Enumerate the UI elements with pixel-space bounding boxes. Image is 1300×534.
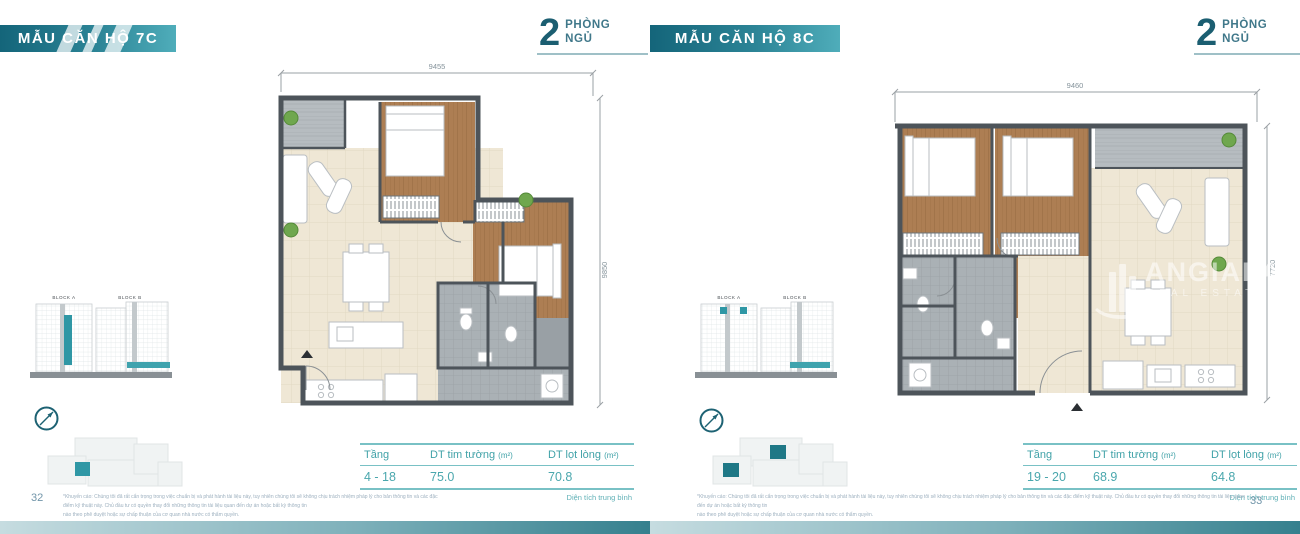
wardrobe: [383, 196, 439, 218]
washbasin: [478, 352, 492, 362]
bedroom-word-top: PHÒNG: [565, 19, 610, 31]
wardrobe: [903, 233, 983, 255]
wall-area-value: 75.0: [430, 470, 548, 484]
chair: [369, 244, 383, 253]
unit-location-highlight: [740, 307, 747, 314]
compass-icon: [698, 407, 725, 434]
unit-highlight: [75, 462, 90, 476]
dim-width-label-8c: 9460: [1067, 81, 1084, 90]
disclaimer-right: *Khuyến cáo: Chúng tôi đã rất cẩn trọng …: [697, 493, 1245, 520]
sofa: [1205, 178, 1229, 246]
unit-highlight: [770, 445, 786, 459]
core-strip: [725, 304, 730, 372]
ground-line: [30, 372, 172, 378]
bedroom-words: PHÒNG NGỦ: [560, 15, 610, 51]
chair: [1151, 336, 1165, 345]
banner-title-8c: MẪU CĂN HỘ 8C: [675, 30, 815, 47]
headboard: [905, 136, 913, 196]
disclaimer-left: *Khuyến cáo: Chúng tôi đã rất cẩn trọng …: [63, 493, 448, 520]
block-b-elevation: [96, 308, 126, 372]
col-floor: Tầng: [364, 449, 430, 461]
floor-plan-8c: 9460 7720: [885, 78, 1285, 423]
dim-height-label-7c: 9850: [600, 262, 608, 279]
net-area-value: 70.8: [548, 470, 638, 484]
unit-underline: [537, 53, 648, 55]
keyplan-7c: [30, 432, 185, 494]
floor-range: 4 - 18: [364, 470, 430, 484]
chair: [1151, 280, 1165, 289]
block-elevation-8c: BLOCK A BLOCK B: [693, 292, 839, 382]
block-a-label: BLOCK A: [52, 295, 76, 300]
toilet: [917, 296, 929, 312]
wardrobe: [1001, 233, 1079, 255]
col-floor: Tầng: [1027, 449, 1093, 461]
col-wall-area: DT tim tường (m²): [430, 449, 548, 461]
ground-line: [695, 372, 837, 378]
core-strip: [132, 302, 137, 372]
sofa: [283, 155, 307, 223]
bedroom-count-7c: 2 PHÒNG NGỦ: [539, 15, 610, 51]
dining-table: [343, 252, 389, 302]
kitchen-cabinet: [1103, 361, 1143, 389]
col-wall-area: DT tim tường (m²): [1093, 449, 1211, 461]
floorplate: [823, 462, 847, 486]
chair: [349, 302, 363, 311]
kitchen-island: [329, 322, 403, 348]
kitchen-counter: [1185, 365, 1235, 387]
dim-height-label-8c: 7720: [1268, 260, 1277, 277]
table-header-row: Tầng DT tim tường (m²) DT lọt lòng (m²): [1023, 445, 1297, 465]
balcony: [1095, 126, 1243, 168]
bed: [386, 114, 444, 176]
chair: [1131, 336, 1145, 345]
kitchen-counter: [1147, 365, 1181, 387]
toilet-tank: [460, 308, 472, 314]
bedroom-words: PHÒNG NGỦ: [1217, 15, 1267, 51]
block-b-label: BLOCK B: [783, 295, 806, 300]
toilet: [460, 314, 472, 330]
bottom-accent-bar: [0, 521, 650, 534]
chair: [349, 244, 363, 253]
kitchen-counter: [305, 380, 383, 402]
block-b-elevation: [761, 308, 791, 372]
floor-plan-7c: 9455 9850: [273, 60, 608, 418]
table-header-row: Tầng DT tim tường (m²) DT lọt lòng (m²): [360, 445, 634, 465]
headboard: [386, 106, 444, 114]
washing-machine: [541, 374, 563, 398]
page-number-left: 32: [31, 492, 43, 504]
bedroom-word-bottom: NGỦ: [565, 33, 592, 45]
unit-location-highlight: [64, 315, 72, 365]
bed: [499, 246, 553, 296]
washing-machine: [909, 363, 931, 387]
unit-location-highlight: [720, 307, 727, 314]
fridge: [385, 374, 417, 402]
bedroom-number: 2: [539, 15, 560, 51]
bed: [913, 138, 975, 196]
floorplate: [158, 462, 182, 486]
disclaimer-line2: nào theo phê duyệt hoặc sự chấp thuận củ…: [697, 512, 873, 518]
washbasin: [997, 338, 1010, 349]
brochure-spread: MẪU CĂN HỘ 7C 2 PHÒNG NGỦ: [0, 0, 1300, 534]
washbasin: [903, 268, 917, 279]
entry-hall: [1018, 256, 1090, 393]
core-strip: [797, 302, 802, 372]
dining-table: [1125, 288, 1171, 336]
block-elevation-7c: BLOCK A BLOCK B: [28, 292, 174, 382]
banner-8c: MẪU CĂN HỘ 8C: [650, 25, 840, 52]
headboard: [553, 244, 561, 298]
col-net-area: DT lọt lòng (m²): [548, 449, 638, 461]
chair: [369, 302, 383, 311]
block-a-label: BLOCK A: [717, 295, 741, 300]
entry-arrow: [1071, 403, 1083, 411]
compass-icon: [33, 405, 60, 432]
table-value-row: 4 - 18 75.0 70.8: [360, 466, 634, 488]
podium-highlight: [790, 362, 830, 368]
bedroom-number: 2: [1196, 15, 1217, 51]
col-net-area: DT lọt lòng (m²): [1211, 449, 1300, 461]
toilet: [505, 326, 517, 342]
page-number-right: 33: [1250, 495, 1262, 507]
wardrobe: [476, 202, 524, 222]
bedroom-word-top: PHÒNG: [1222, 19, 1267, 31]
block-b-label: BLOCK B: [118, 295, 141, 300]
chair: [1131, 280, 1145, 289]
disclaimer-line1: *Khuyến cáo: Chúng tôi đã rất cẩn trọng …: [697, 494, 1245, 509]
podium-highlight: [127, 362, 170, 368]
keyplan-8c: [695, 432, 850, 494]
bed: [1011, 138, 1073, 196]
bottom-accent-bar: [650, 521, 1300, 534]
bedroom-word-bottom: NGỦ: [1222, 33, 1249, 45]
headboard: [1003, 136, 1011, 196]
net-area-value: 64.8: [1211, 470, 1300, 484]
dim-width-label-7c: 9455: [429, 62, 446, 71]
disclaimer-line1: *Khuyến cáo: Chúng tôi đã rất cẩn trọng …: [63, 494, 438, 509]
table-value-row: 19 - 20 68.9 64.8: [1023, 466, 1297, 488]
bedroom-count-8c: 2 PHÒNG NGỦ: [1196, 15, 1267, 51]
unit-highlight: [723, 463, 739, 477]
wall-area-value: 68.9: [1093, 470, 1211, 484]
toilet: [981, 320, 993, 336]
disclaimer-line2: nào theo phê duyệt hoặc sự chấp thuận củ…: [63, 512, 239, 518]
floor-range: 19 - 20: [1027, 470, 1093, 484]
unit-underline: [1194, 53, 1300, 55]
